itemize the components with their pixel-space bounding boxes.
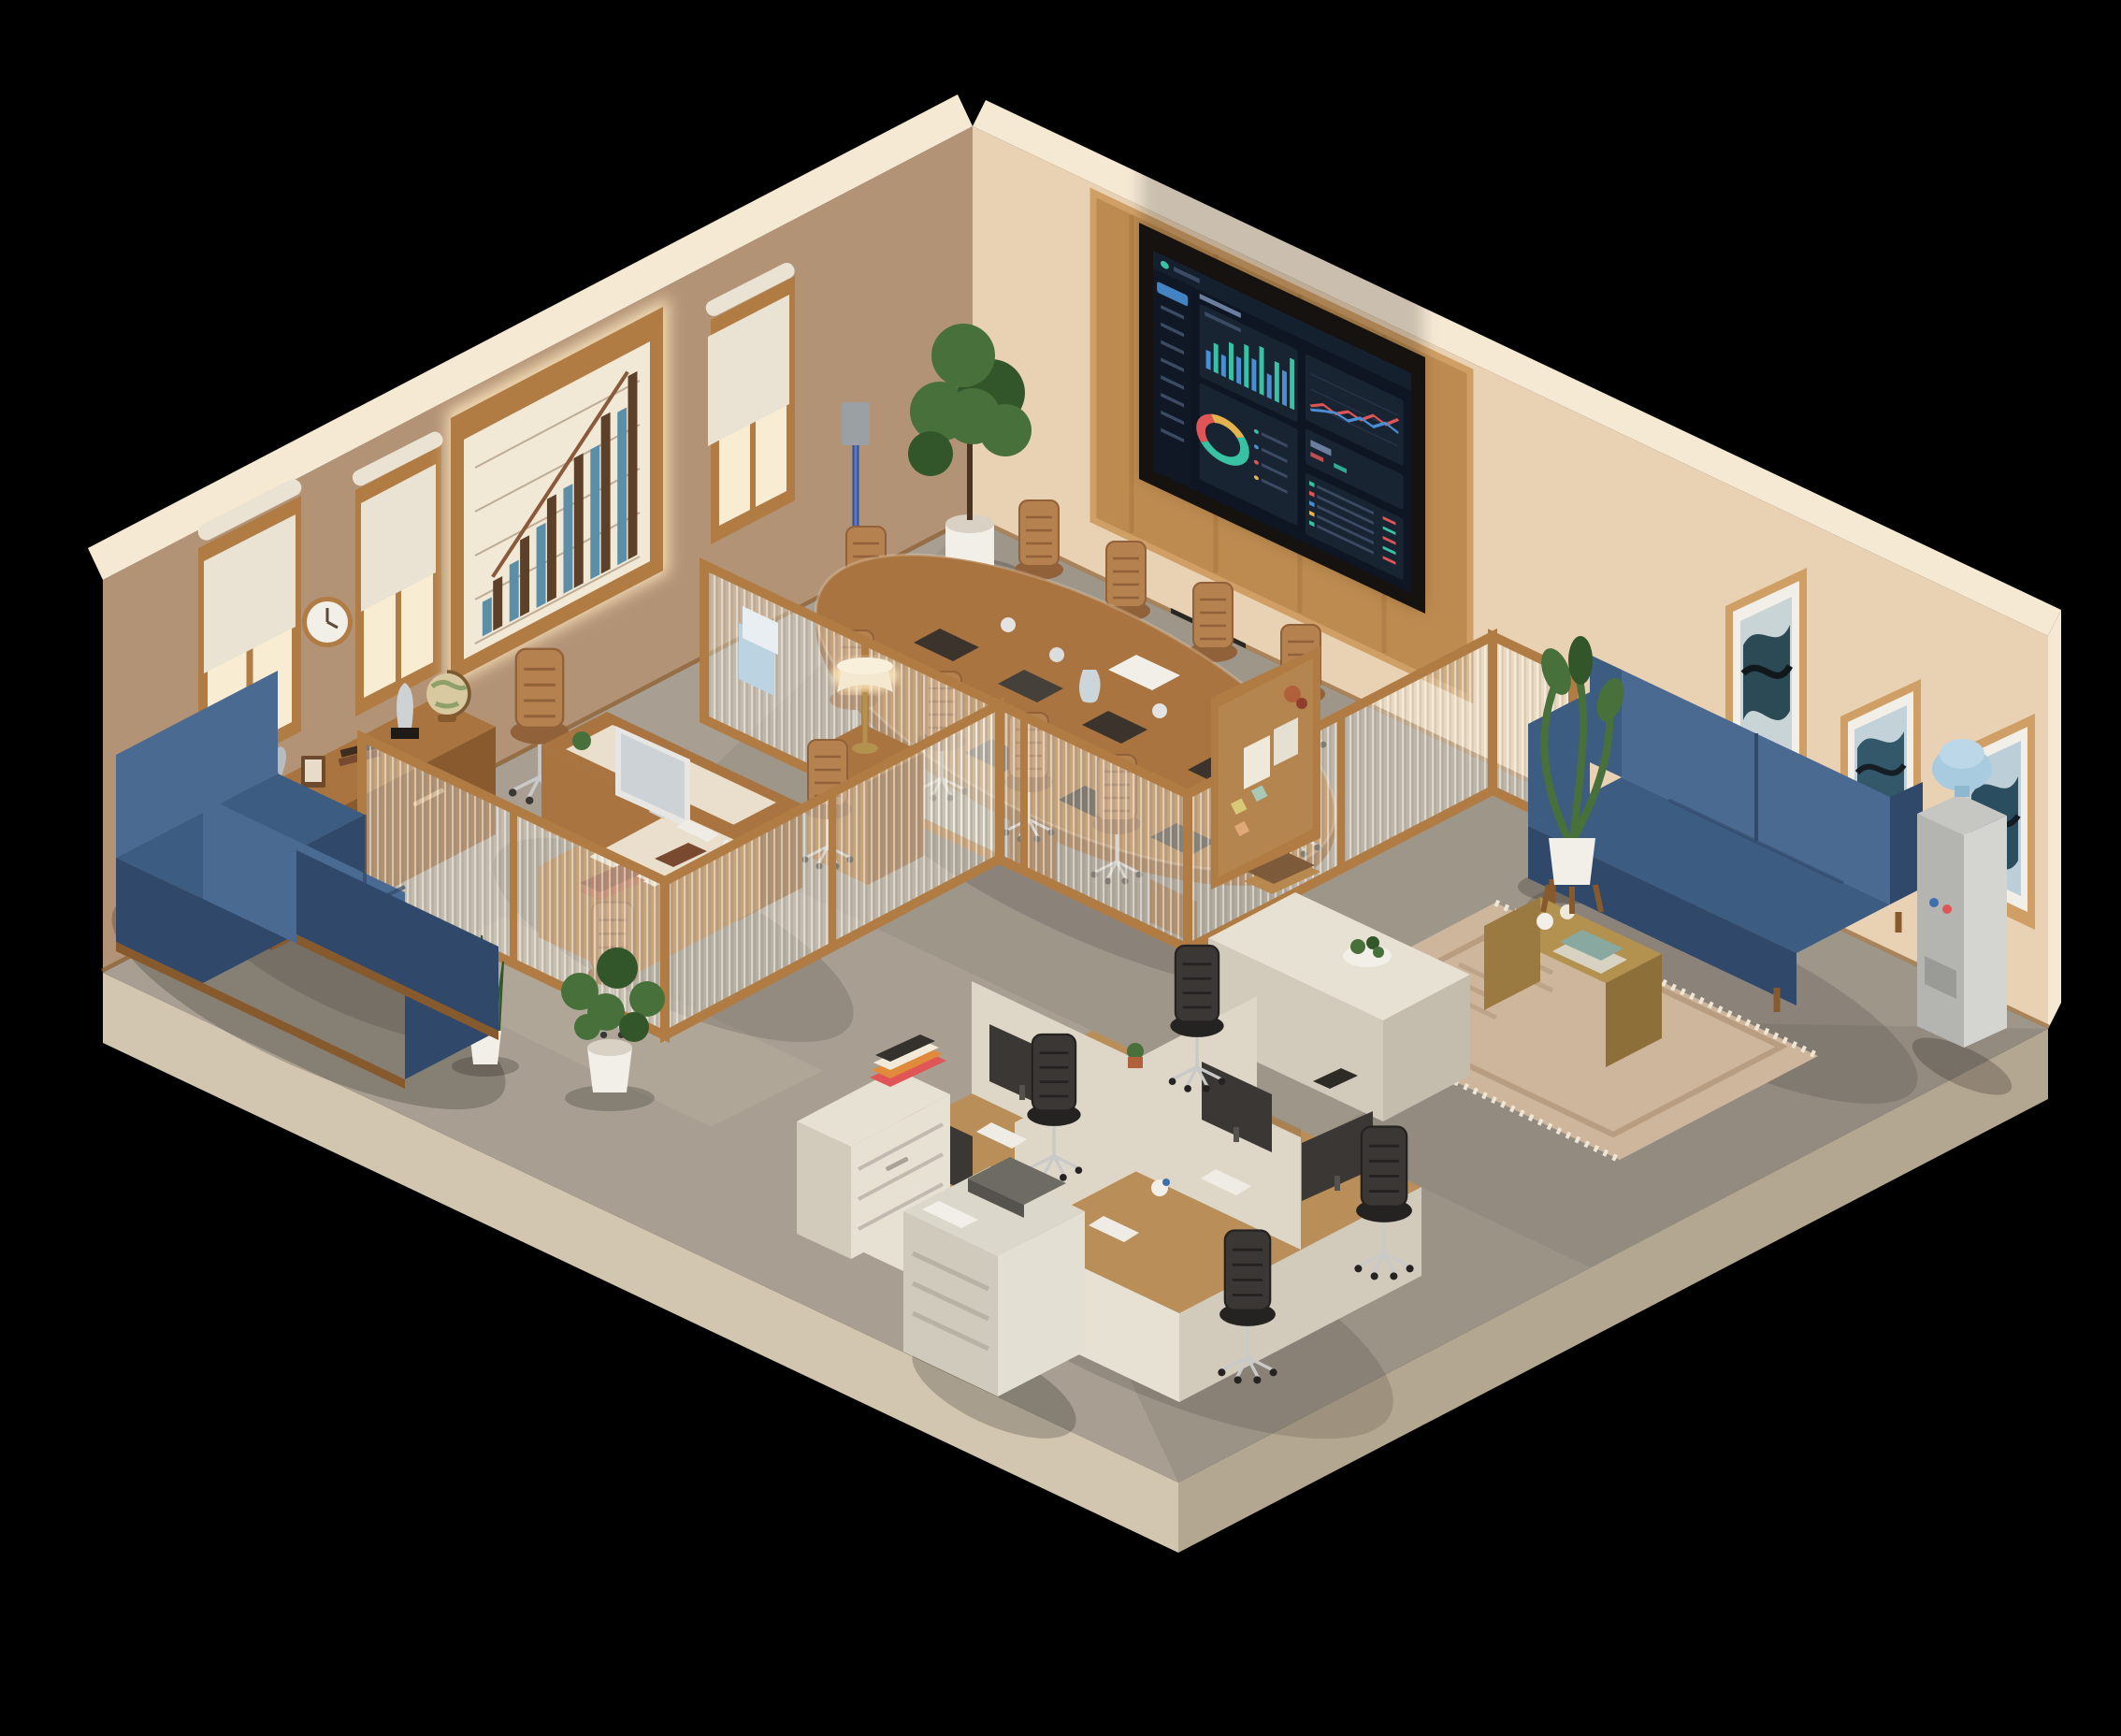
wall-clock xyxy=(302,597,353,647)
window-3 xyxy=(703,260,797,544)
isometric-office-render xyxy=(0,0,2121,1736)
mug xyxy=(1537,913,1553,930)
succulent-bowl xyxy=(1343,945,1392,967)
window-2 xyxy=(350,429,445,716)
scene-stage xyxy=(0,0,2121,1736)
desk-plant xyxy=(572,731,591,750)
